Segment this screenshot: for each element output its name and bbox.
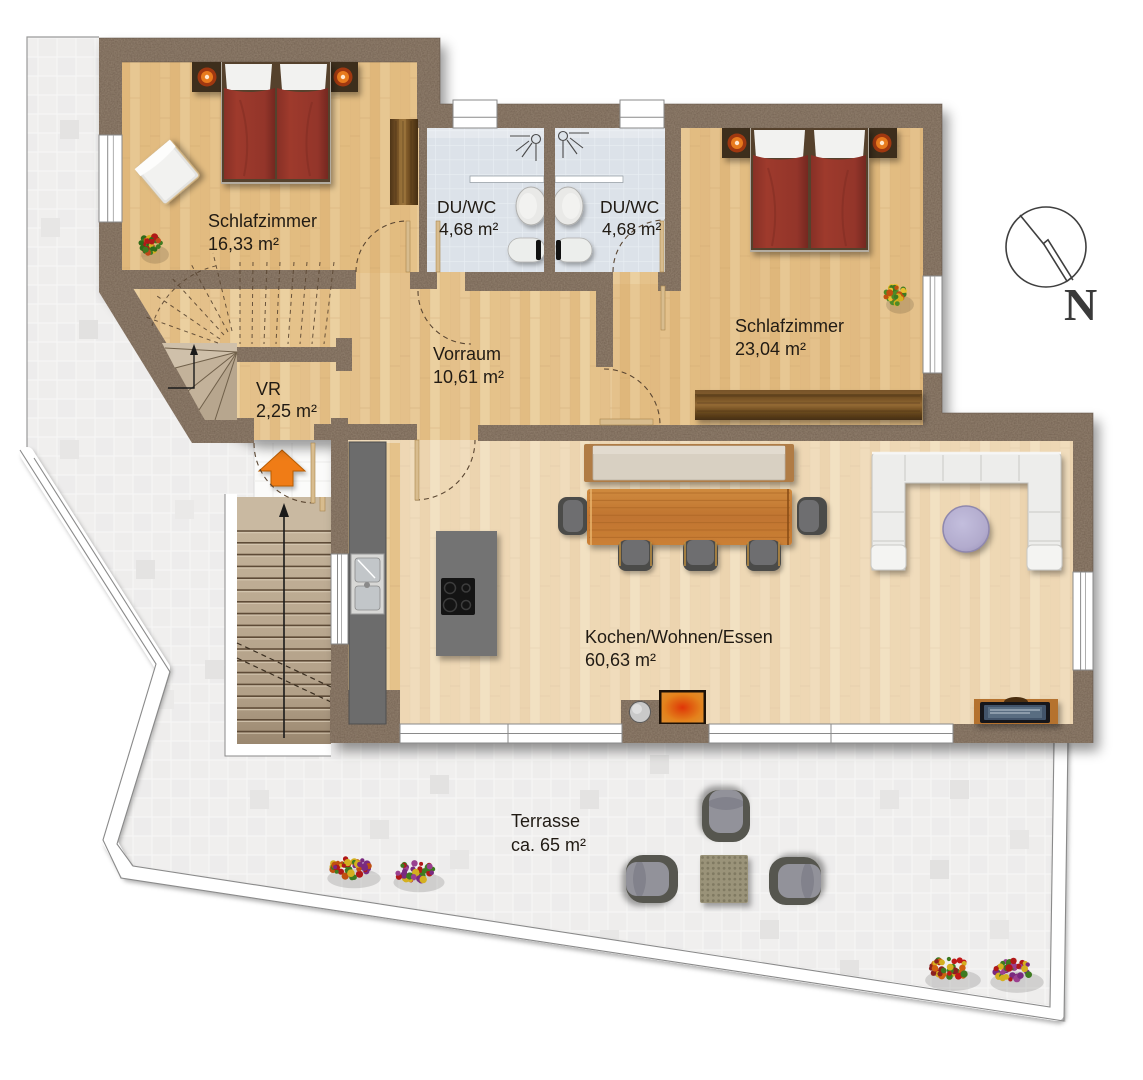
- svg-text:23,04 m²: 23,04 m²: [735, 339, 806, 359]
- svg-text:Kochen/Wohnen/Essen: Kochen/Wohnen/Essen: [585, 627, 773, 647]
- svg-text:Schlafzimmer: Schlafzimmer: [208, 211, 317, 231]
- svg-text:DU/WC: DU/WC: [437, 197, 496, 217]
- svg-text:2,25 m²: 2,25 m²: [256, 401, 317, 421]
- svg-text:4,68 m²: 4,68 m²: [602, 219, 661, 239]
- svg-text:Terrasse: Terrasse: [511, 811, 580, 831]
- svg-text:N: N: [1064, 279, 1097, 330]
- svg-text:10,61 m²: 10,61 m²: [433, 367, 504, 387]
- svg-text:ca. 65 m²: ca. 65 m²: [511, 835, 586, 855]
- svg-text:VR: VR: [256, 379, 281, 399]
- svg-text:Schlafzimmer: Schlafzimmer: [735, 316, 844, 336]
- svg-text:60,63 m²: 60,63 m²: [585, 650, 656, 670]
- svg-text:4,68 m²: 4,68 m²: [439, 219, 498, 239]
- svg-text:DU/WC: DU/WC: [600, 197, 659, 217]
- svg-text:16,33 m²: 16,33 m²: [208, 234, 279, 254]
- svg-text:Vorraum: Vorraum: [433, 344, 501, 364]
